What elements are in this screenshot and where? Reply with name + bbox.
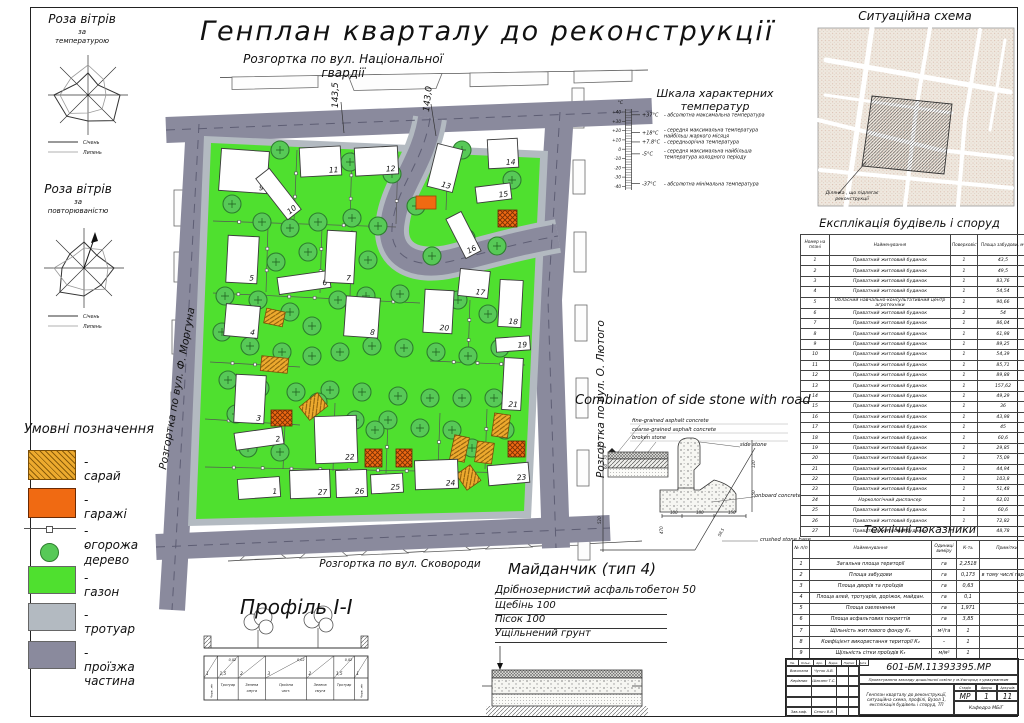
temp-entry-value: +7.8°C bbox=[642, 140, 661, 146]
profile-drawing: 1Черв. лін0,021,5Тротуар2Зеленасмуга0,02… bbox=[204, 606, 368, 700]
shed bbox=[260, 356, 288, 374]
side-stone-block bbox=[678, 438, 700, 490]
profile-width: 2 bbox=[240, 671, 243, 676]
fence-post bbox=[350, 174, 353, 177]
building-number: 15 bbox=[498, 189, 509, 199]
profile-width: 1 bbox=[356, 671, 359, 676]
fence-post bbox=[485, 428, 488, 431]
temp-entry-text: - середньорічна температура bbox=[664, 140, 739, 146]
temp-tick: +30 bbox=[612, 119, 621, 124]
fence-post bbox=[313, 296, 316, 299]
fence-post bbox=[467, 339, 470, 342]
fence-post bbox=[386, 446, 389, 449]
building-number: 14 bbox=[506, 157, 516, 166]
building-number: 19 bbox=[517, 340, 527, 350]
fence-post bbox=[232, 466, 235, 469]
fence-post bbox=[438, 441, 441, 444]
detail-label: coarse-grained asphalt concrete bbox=[632, 427, 716, 433]
profile-width: 2 bbox=[309, 671, 312, 676]
fence-post bbox=[238, 220, 241, 223]
detail-dim: 150 bbox=[751, 490, 756, 498]
building-number: 23 bbox=[516, 472, 527, 482]
rose2-legend-jul: Липень bbox=[82, 324, 102, 330]
fence-post bbox=[452, 361, 455, 364]
building-number: 18 bbox=[508, 317, 518, 326]
reconstruction-parcel bbox=[862, 96, 952, 174]
building-number: 20 bbox=[439, 323, 449, 332]
garage-solid bbox=[416, 196, 436, 209]
fence-post bbox=[500, 363, 503, 366]
temp-tick: -40 bbox=[614, 184, 621, 189]
shed bbox=[491, 413, 510, 438]
temp-tick: +20 bbox=[612, 128, 621, 133]
wind-rose-temperature: Січень Липень bbox=[48, 55, 128, 156]
profile-width: 3 bbox=[268, 671, 271, 676]
detail-dim: 100 bbox=[670, 510, 678, 515]
onboard-concrete-block bbox=[660, 480, 736, 512]
temp-entry-value: -37°C bbox=[642, 181, 657, 187]
garage bbox=[498, 210, 517, 227]
temp-entry-value: -5°C bbox=[642, 152, 653, 158]
building-number: 12 bbox=[386, 164, 396, 173]
temp-entry-text: - абсолютна мінімальна температура bbox=[664, 181, 759, 187]
temp-tick: +40 bbox=[612, 110, 621, 115]
building-number: 24 bbox=[446, 478, 456, 487]
temp-unit: °C bbox=[618, 100, 624, 106]
fence-post bbox=[405, 469, 408, 472]
profile-label: част. bbox=[282, 689, 291, 693]
playground-section bbox=[482, 646, 648, 716]
garage bbox=[271, 410, 292, 426]
temp-entry-text: - середня максимальна температура bbox=[664, 128, 758, 133]
temp-tick: -10 bbox=[614, 156, 621, 161]
temp-entry-text: найбільш жаркого місяця bbox=[664, 133, 729, 139]
rose1-legend-jan: Січень bbox=[83, 140, 100, 146]
building bbox=[458, 269, 491, 299]
detail-dim: 70 bbox=[603, 454, 608, 460]
building bbox=[234, 374, 266, 424]
detail-label: side stone bbox=[740, 442, 767, 448]
garage bbox=[396, 449, 412, 467]
temp-tick: 0 bbox=[618, 147, 621, 152]
fence-post bbox=[295, 172, 298, 175]
profile-label: Черв. лін bbox=[209, 684, 213, 698]
profile-label: Проїзна bbox=[279, 683, 293, 687]
drawing-canvas: Січень Липень Січень Липень bbox=[0, 0, 1024, 723]
fence-post bbox=[349, 197, 352, 200]
fence-post bbox=[294, 195, 297, 198]
detail-dim: 150 bbox=[728, 510, 736, 515]
fence-post bbox=[254, 363, 257, 366]
fence-post bbox=[288, 295, 291, 298]
fence-post bbox=[377, 469, 380, 472]
detail-dim: 180 bbox=[696, 510, 704, 515]
building-number: 7 bbox=[346, 273, 351, 282]
detail-dim: 60 bbox=[603, 463, 608, 469]
profile-tree-icon bbox=[244, 606, 333, 648]
profile-label: Зелена bbox=[314, 683, 327, 687]
rose1-legend-jul: Липень bbox=[82, 150, 102, 156]
detail-dim: 520 bbox=[597, 516, 602, 524]
fence-post bbox=[342, 224, 345, 227]
garage bbox=[365, 449, 382, 467]
temp-tick: +10 bbox=[612, 138, 621, 143]
street-label-bottom: Розгортка по вул. Сковороди bbox=[319, 558, 481, 570]
fence-post bbox=[290, 467, 293, 470]
building-number: 22 bbox=[345, 452, 355, 461]
temp-entry-value: +37°C bbox=[642, 113, 659, 119]
detail-label: broken stone bbox=[632, 435, 666, 441]
building-number: 27 bbox=[318, 487, 328, 496]
profile-label: Тротуар bbox=[221, 683, 236, 687]
building-number: 26 bbox=[355, 487, 365, 496]
detail-label: onboard concrete bbox=[755, 493, 801, 499]
building-number: 21 bbox=[508, 400, 518, 409]
detail-dim: 470 bbox=[659, 526, 664, 534]
profile-slope: 0,02 bbox=[345, 658, 353, 662]
building-number: 1 bbox=[272, 487, 277, 496]
temp-entry-text: температура холодного періоду bbox=[664, 155, 746, 161]
building-number: 25 bbox=[390, 482, 400, 491]
temp-tick: -20 bbox=[614, 165, 621, 170]
profile-label: смуга bbox=[315, 689, 325, 693]
temp-entry-text: - середня максимальна найбільша bbox=[664, 149, 752, 155]
detail-label: crushed stone base bbox=[760, 537, 811, 543]
fence-post bbox=[320, 248, 323, 251]
side-stone-detail: fine-grained asphalt concretecoarse-grai… bbox=[597, 418, 811, 552]
detail-label: fine-grained asphalt concrete bbox=[632, 418, 709, 424]
building bbox=[423, 289, 454, 333]
fence-post bbox=[266, 247, 269, 250]
fence-post bbox=[231, 362, 234, 365]
building bbox=[325, 230, 357, 283]
fence-post bbox=[395, 200, 398, 203]
profile-width: 1,5 bbox=[220, 671, 227, 676]
fence-post bbox=[237, 293, 240, 296]
profile-slope: 0,02 bbox=[297, 658, 305, 662]
elevation-143-5: 143,5 bbox=[331, 82, 341, 108]
fence-post bbox=[476, 362, 479, 365]
profile-label: Черв. лін bbox=[360, 684, 364, 698]
profile-label: смуга bbox=[247, 689, 257, 693]
shed bbox=[475, 441, 495, 464]
rose2-legend-jan: Січень bbox=[83, 314, 100, 320]
fence-post bbox=[265, 269, 268, 272]
temp-entry-text: - абсолютна максимальна температура bbox=[664, 113, 765, 119]
building-number: 8 bbox=[370, 328, 376, 337]
temp-tick: -30 bbox=[614, 175, 621, 180]
building-number: 3 bbox=[256, 413, 261, 422]
profile-width: 1,5 bbox=[336, 671, 343, 676]
profile-slope: 0,02 bbox=[229, 658, 237, 662]
detail-dim: 120 bbox=[751, 460, 756, 468]
building bbox=[226, 235, 259, 284]
wind-rose-frequency: Січень Липень bbox=[44, 228, 124, 330]
fence-post bbox=[261, 467, 264, 470]
building-number: 11 bbox=[329, 165, 339, 174]
detail-dim: 150 bbox=[597, 442, 602, 450]
profile-label: Тротуар bbox=[337, 683, 352, 687]
garage bbox=[508, 441, 525, 457]
profile-width: 1 bbox=[206, 671, 209, 676]
building-number: 17 bbox=[475, 287, 486, 297]
profile-label: Зелена bbox=[245, 683, 258, 687]
fence-post bbox=[468, 319, 471, 322]
street-label-right: Розгортка по вул. О. Лютого bbox=[595, 320, 607, 478]
temp-entry-value: +18°C bbox=[642, 130, 659, 136]
detail-dim: 58,5 bbox=[717, 527, 726, 538]
building-number: 5 bbox=[249, 273, 254, 282]
situational-map bbox=[818, 28, 1014, 206]
